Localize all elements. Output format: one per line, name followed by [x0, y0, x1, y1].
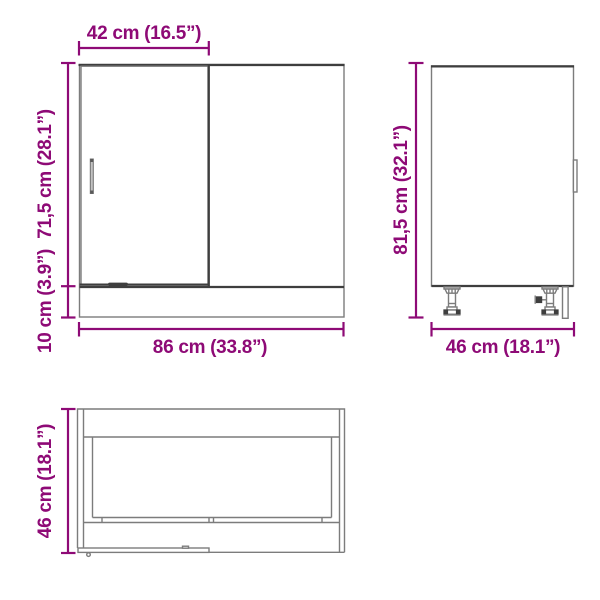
front-plinth-height-label: 10 cm (3.9”) — [35, 249, 57, 353]
adjustable-foot-left — [444, 287, 461, 315]
side-depth-label: 46 cm (18.1”) — [446, 337, 560, 359]
top-door-damper — [183, 546, 189, 548]
side-handle — [573, 160, 577, 192]
door-handle — [90, 159, 93, 194]
top-depth-label: 46 cm (18.1”) — [35, 424, 57, 538]
front-height-dimension — [61, 63, 76, 318]
front-door — [81, 66, 208, 284]
front-view — [61, 41, 345, 337]
top-depth-dimension — [61, 409, 76, 553]
foot-adjuster — [535, 296, 546, 304]
front-total-width-label: 86 cm (33.8”) — [153, 337, 267, 359]
side-depth-dimension — [432, 322, 575, 337]
front-door-height-label: 71,5 cm (28.1”) — [35, 109, 57, 239]
top-door-panel — [78, 548, 209, 552]
technical-drawing — [0, 0, 600, 600]
adjustable-foot-right — [542, 287, 559, 315]
front-total-width-dimension — [79, 322, 344, 337]
top-hinge-pin — [87, 553, 91, 557]
front-damper — [108, 283, 128, 286]
top-view — [61, 409, 345, 556]
side-plinth-panel — [563, 287, 569, 319]
side-height-label: 81,5 cm (32.1”) — [391, 125, 413, 255]
dimension-diagram: 42 cm (16.5”) 71,5 cm (28.1”) 10 cm (3.9… — [0, 0, 600, 600]
front-door-width-label: 42 cm (16.5”) — [87, 23, 201, 45]
side-view — [409, 63, 578, 337]
